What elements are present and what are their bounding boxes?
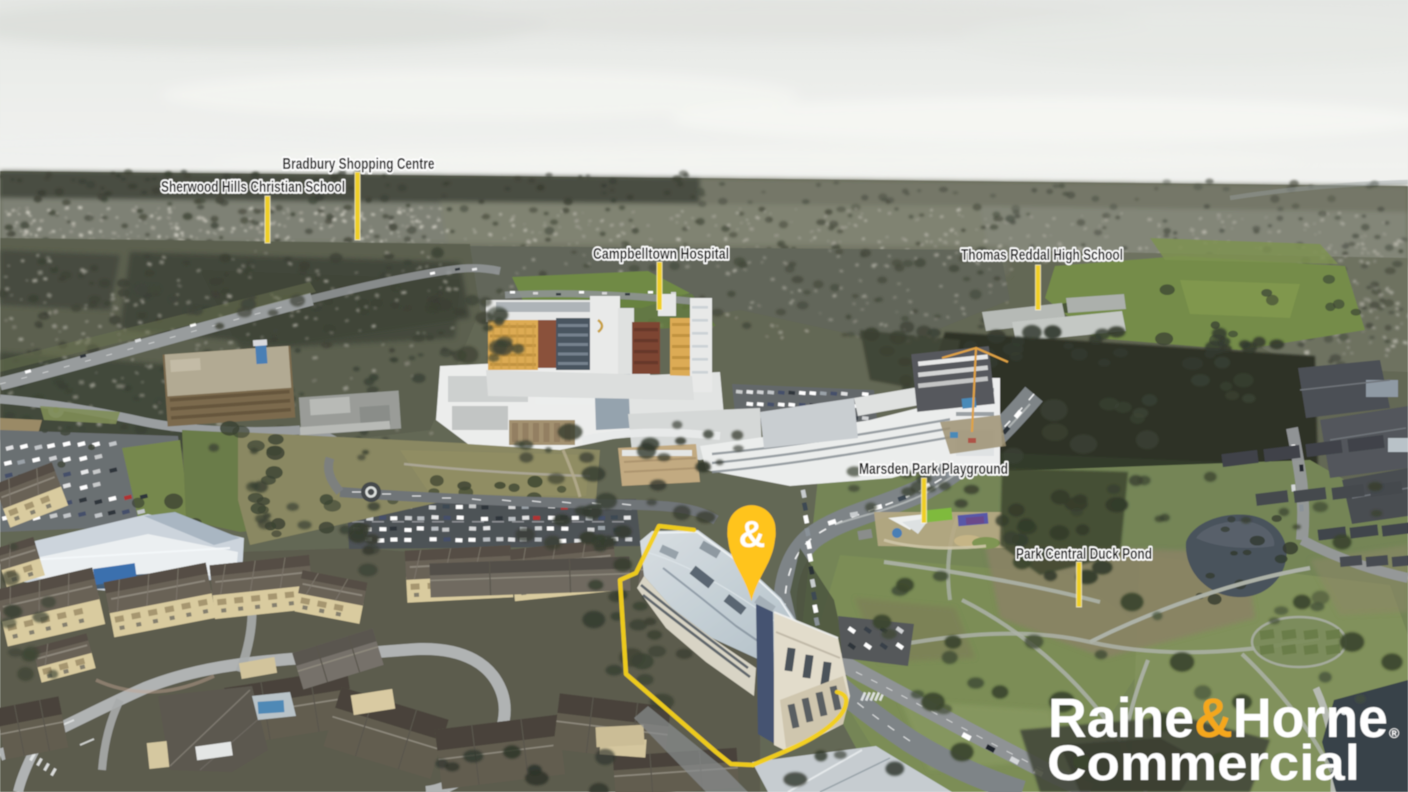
- svg-text:Marsden Park Playground: Marsden Park Playground: [859, 461, 1008, 478]
- svg-text:Campbelltown Hospital: Campbelltown Hospital: [593, 246, 729, 263]
- svg-text:Sherwood Hills Christian Schoo: Sherwood Hills Christian School: [161, 179, 345, 196]
- svg-text:Bradbury Shopping Centre: Bradbury Shopping Centre: [283, 156, 435, 173]
- svg-text:Park Central Duck Pond: Park Central Duck Pond: [1016, 546, 1152, 563]
- svg-text:Thomas Reddal High School: Thomas Reddal High School: [961, 247, 1123, 264]
- svg-text:&: &: [739, 514, 766, 555]
- svg-text:Commercial: Commercial: [1047, 735, 1360, 791]
- svg-text:®: ®: [1389, 725, 1400, 741]
